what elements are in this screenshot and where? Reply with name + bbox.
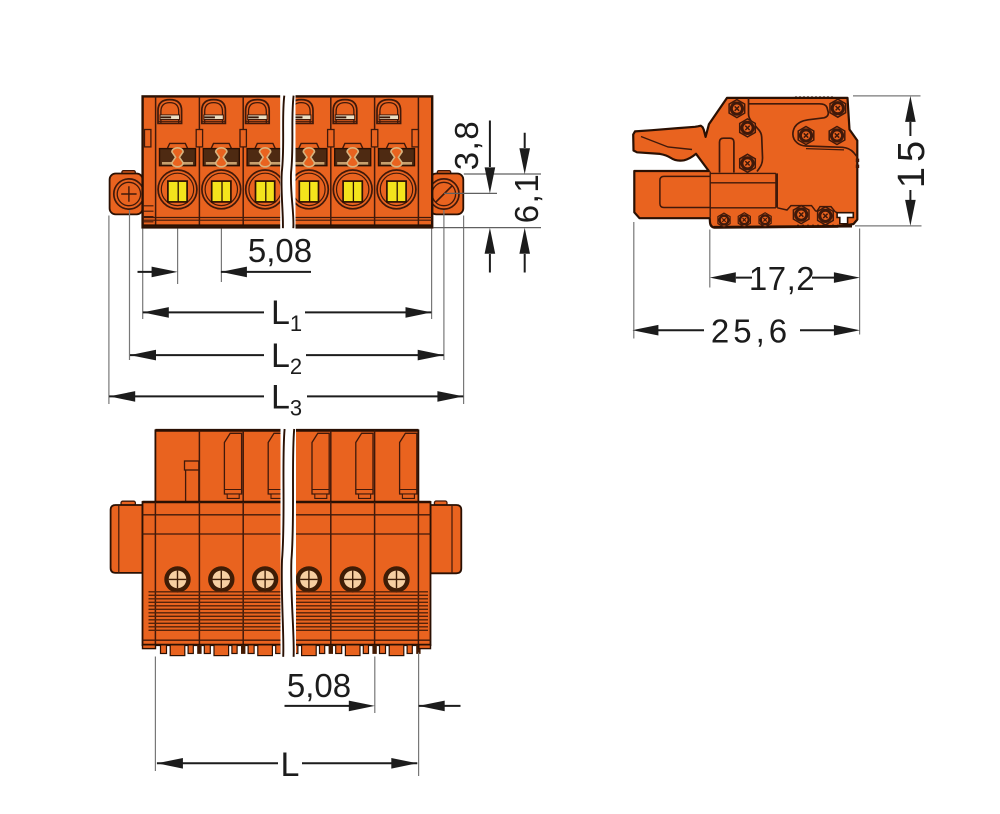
svg-text:5,08: 5,08 (248, 232, 312, 269)
svg-text:5,08: 5,08 (287, 667, 351, 704)
svg-text:L1: L1 (271, 294, 302, 336)
svg-text:15: 15 (891, 136, 933, 188)
svg-text:L2: L2 (271, 337, 302, 379)
svg-text:3,8: 3,8 (448, 120, 485, 170)
svg-text:6,1: 6,1 (508, 173, 545, 223)
svg-text:L3: L3 (271, 379, 302, 421)
svg-text:L: L (281, 746, 300, 784)
svg-text:25,6: 25,6 (711, 313, 791, 350)
svg-text:17,2: 17,2 (749, 260, 815, 297)
